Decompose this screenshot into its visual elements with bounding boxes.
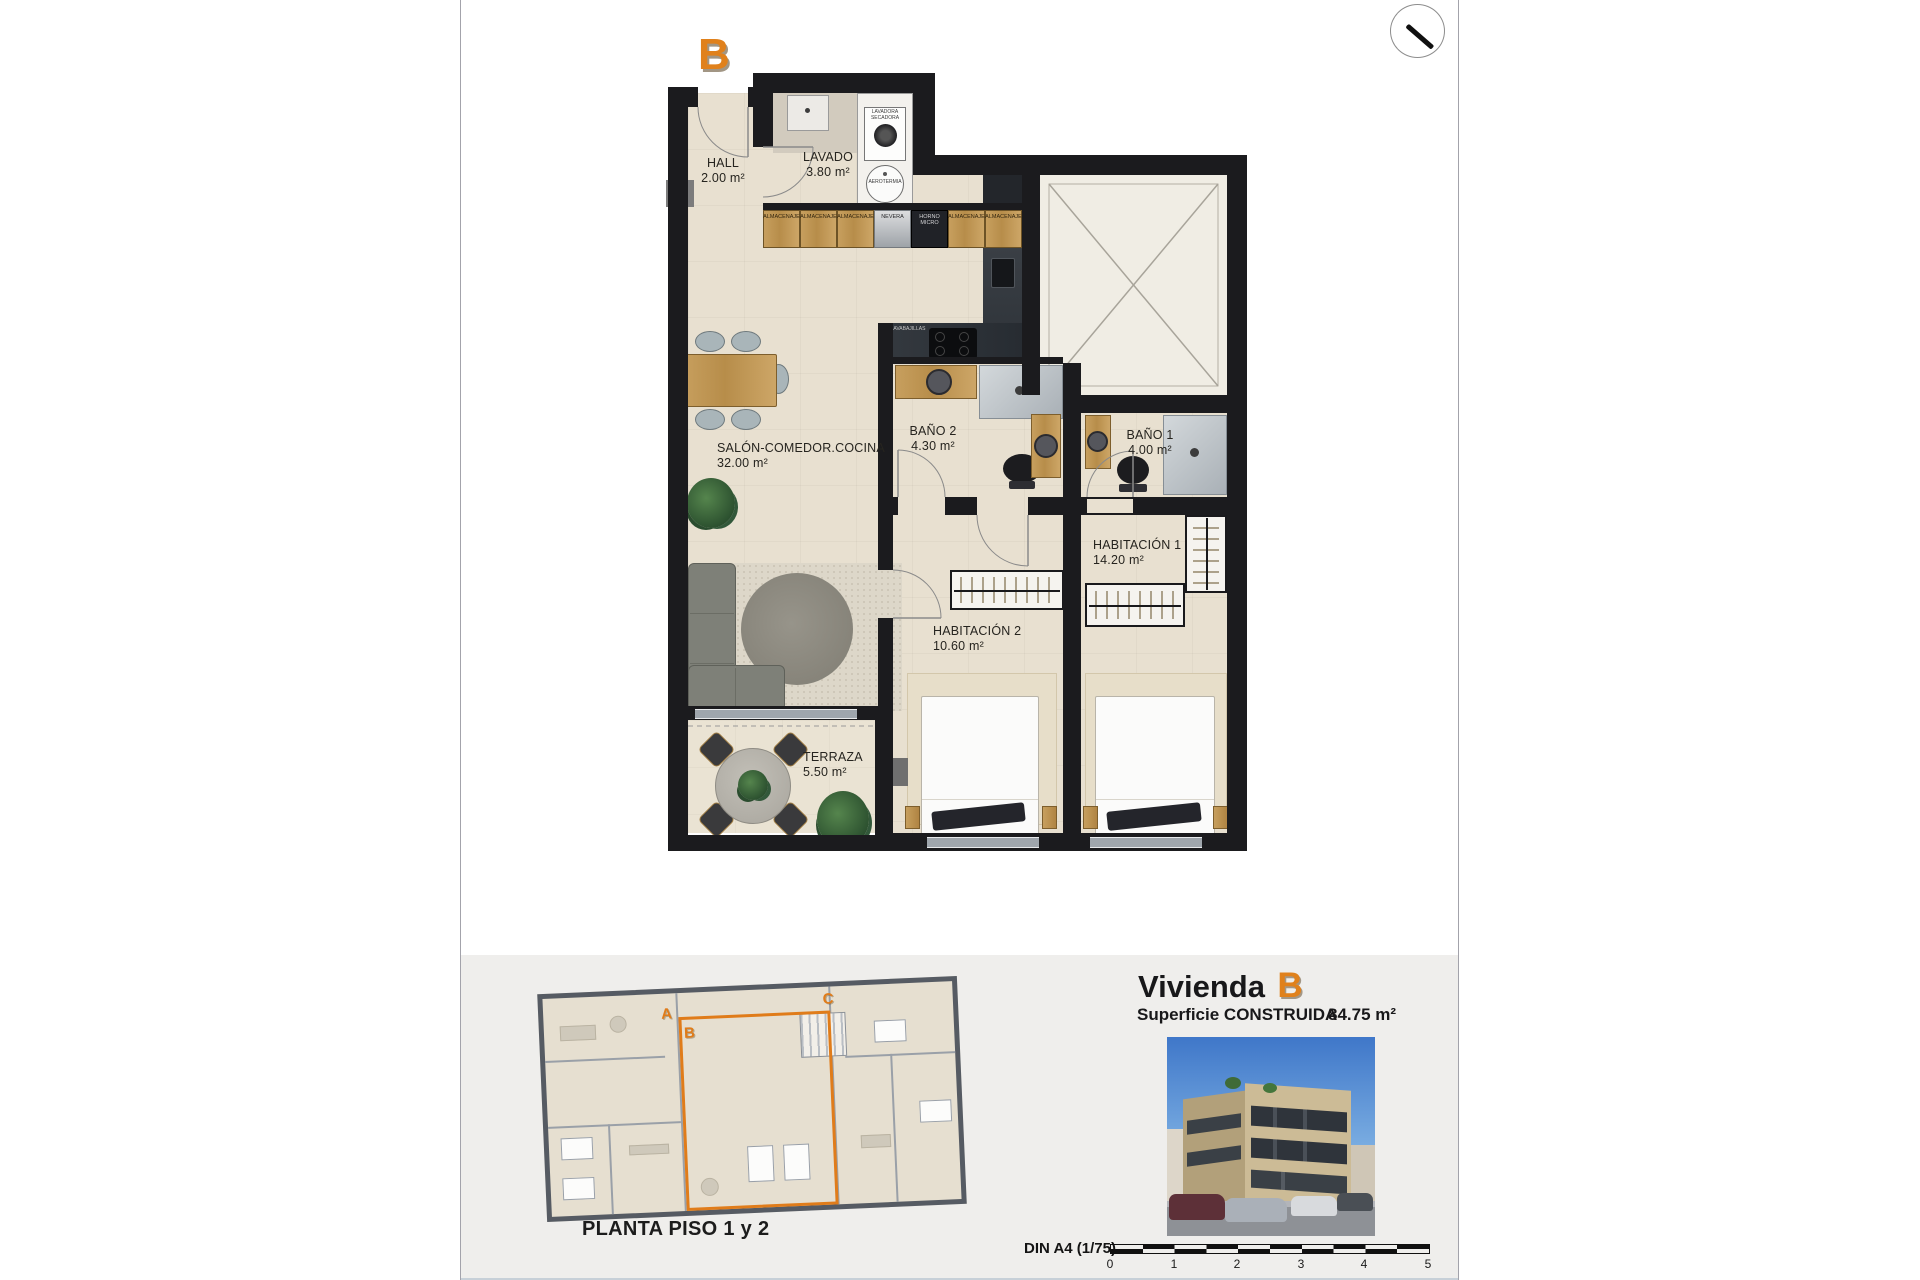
surface-label: Superficie CONSTRUIDA (1137, 1005, 1337, 1025)
bed (1095, 696, 1215, 835)
building-photo (1167, 1037, 1375, 1236)
kitchen-cabinet: ALMACENAJE (763, 210, 800, 248)
scale-bar-row (1111, 1249, 1429, 1253)
mini-sofa (861, 1134, 892, 1148)
room-divider (890, 1054, 898, 1202)
room-label-lavado: LAVADO 3.80 m² (790, 150, 866, 180)
wall (668, 835, 880, 851)
patio (1040, 175, 1227, 395)
unit-b-letter: B (684, 1024, 696, 1041)
bed (921, 696, 1039, 835)
patio-cross-icon (1040, 175, 1227, 395)
pillow-icon (1106, 802, 1202, 831)
apartment-floor-plan: LAVADORA SECADORA AEROTERMIA ALMACENAJE … (665, 58, 1255, 858)
unit-c-letter: C (822, 990, 834, 1007)
wall (753, 73, 935, 93)
cabinet-label: ALMACENAJE (800, 214, 837, 220)
nightstand (1083, 806, 1098, 829)
washer-drum-icon (874, 124, 897, 147)
scale-bar (1110, 1244, 1430, 1254)
wall (668, 87, 698, 107)
window-door (695, 709, 857, 719)
counter-sink-icon (991, 258, 1015, 288)
room-label-hab1: HABITACIÓN 1 14.20 m² (1093, 538, 1203, 568)
mini-sofa (560, 1025, 597, 1042)
wall (1028, 497, 1081, 515)
faucet-icon (805, 108, 810, 113)
room-area: 4.30 m² (897, 439, 969, 454)
wall (878, 618, 893, 720)
room-divider (545, 1056, 665, 1063)
washbasin-icon (1087, 431, 1108, 452)
photo-car (1337, 1193, 1373, 1211)
oven-label: HORNO MICRO (918, 214, 942, 226)
toilet-tank (1119, 484, 1147, 492)
bed-fold (1096, 799, 1214, 800)
washbasin-icon (1034, 434, 1058, 458)
room-name: HALL (683, 156, 763, 171)
washbasin-icon (926, 369, 952, 395)
heat-pump-dot (883, 172, 887, 176)
wall (763, 203, 1022, 210)
photo-roof-plant (1225, 1077, 1241, 1089)
room-area: 5.50 m² (803, 765, 883, 780)
wardrobe (950, 570, 1064, 610)
kitchen-cabinet: ALMACENAJE (800, 210, 837, 248)
room-name: SALÓN-COMEDOR.COCINA (717, 441, 897, 456)
scale-caption: DIN A4 (1/75) (1024, 1240, 1116, 1257)
wall (1063, 363, 1081, 497)
wardrobe-rod (1089, 605, 1181, 607)
sheet: B LAVADORA SECADORA AEROTERMIA ALMACENAJ… (0, 0, 1920, 1280)
scale-tick: 2 (1227, 1257, 1247, 1271)
room-name: TERRAZA (803, 750, 883, 765)
toilet-tank (1009, 481, 1035, 489)
cabinet-label: ALMACENAJE (837, 214, 874, 220)
toilet-icon (1117, 456, 1149, 484)
room-area: 3.80 m² (790, 165, 866, 180)
mini-plan-caption: PLANTA PISO 1 y 2 (582, 1218, 769, 1241)
cabinet-label: ALMACENAJE (948, 214, 985, 220)
room-divider (608, 1124, 614, 1214)
burner-icon (935, 332, 945, 342)
kitchen-cabinet: ALMACENAJE (985, 210, 1022, 248)
showerhead-icon (1190, 448, 1199, 457)
mini-table (609, 1015, 627, 1033)
sofa-seam (690, 663, 734, 664)
mini-bed (561, 1137, 594, 1160)
nightstand (905, 806, 920, 829)
heat-pump-label: AEROTERMIA (867, 180, 903, 186)
room-area: 10.60 m² (933, 639, 1043, 654)
room-name: BAÑO 1 (1110, 428, 1190, 443)
room-divider (845, 1051, 955, 1058)
washer-label: LAVADORA SECADORA (865, 110, 905, 121)
room-area: 32.00 m² (717, 456, 897, 471)
cabinet-label: ALMACENAJE (985, 214, 1022, 220)
wall (875, 718, 893, 851)
cabinet-label: ALMACENAJE (763, 214, 800, 220)
room-area: 2.00 m² (683, 171, 763, 186)
oven-micro: HORNO MICRO (911, 210, 948, 248)
room-name: HABITACIÓN 2 (933, 624, 1043, 639)
room-name: LAVADO (790, 150, 866, 165)
mini-bed (562, 1177, 595, 1200)
fridge-label: NEVERA (881, 214, 904, 220)
scale-tick: 0 (1100, 1257, 1120, 1271)
photo-car (1225, 1198, 1287, 1222)
sofa-seam (690, 613, 734, 614)
wardrobe-rod (1206, 518, 1208, 589)
chair (695, 409, 725, 430)
room-divider (548, 1121, 681, 1129)
pillow-icon (932, 802, 1026, 831)
wardrobe (1085, 583, 1185, 627)
photo-roof-plant (1263, 1083, 1277, 1093)
wall (1081, 395, 1247, 413)
dining-table (682, 354, 777, 407)
sofa-chaise (688, 665, 785, 711)
room-name: BAÑO 2 (897, 424, 969, 439)
window (927, 837, 1039, 848)
room-area: 4.00 m² (1110, 443, 1190, 458)
wall (945, 497, 977, 515)
scale-tick: 5 (1418, 1257, 1438, 1271)
wall (878, 515, 893, 570)
nightstand (1213, 806, 1228, 829)
mini-building-plan: A B C (537, 976, 967, 1222)
plant-icon (738, 770, 768, 800)
unit-a-letter: A (661, 1005, 673, 1022)
chair (731, 331, 761, 352)
wall (885, 357, 1063, 364)
room-label-terraza: TERRAZA 5.50 m² (803, 750, 883, 780)
room-label-bano1: BAÑO 1 4.00 m² (1110, 428, 1190, 458)
nightstand (1042, 806, 1057, 829)
wall (668, 87, 688, 847)
door-gap (1087, 499, 1133, 513)
scale-tick: 3 (1291, 1257, 1311, 1271)
unit-title-letter: B (1277, 966, 1302, 1005)
sofa-seam (735, 668, 736, 708)
window (1090, 837, 1202, 848)
mini-bed (919, 1099, 952, 1122)
surface-value: 84.75 m² (1328, 1005, 1396, 1025)
burner-icon (935, 346, 945, 356)
tall-unit (983, 175, 1022, 205)
burner-icon (959, 332, 969, 342)
photo-car (1291, 1196, 1337, 1216)
chair (731, 409, 761, 430)
floor-cutout (935, 58, 1255, 155)
laundry-sink (787, 95, 829, 131)
fridge: NEVERA (874, 210, 911, 248)
room-area: 14.20 m² (1093, 553, 1203, 568)
room-label-hab2: HABITACIÓN 2 10.60 m² (933, 624, 1043, 654)
wardrobe-rod (954, 590, 1060, 592)
unit-b-outline (678, 1011, 838, 1211)
unit-title: Vivienda B (1138, 966, 1303, 1006)
wall (913, 155, 1247, 175)
wall (753, 73, 773, 147)
room-label-bano2: BAÑO 2 4.30 m² (897, 424, 969, 454)
mini-bed (874, 1019, 907, 1042)
bed-fold (922, 799, 1038, 800)
plant-icon (687, 478, 735, 528)
room-name: HABITACIÓN 1 (1093, 538, 1203, 553)
chair (695, 331, 725, 352)
wall (1063, 515, 1081, 833)
burner-icon (959, 346, 969, 356)
kitchen-cabinet: ALMACENAJE (948, 210, 985, 248)
wall (878, 497, 898, 515)
scale-tick: 4 (1354, 1257, 1374, 1271)
kitchen-cabinet: ALMACENAJE (837, 210, 874, 248)
room-label-salon: SALÓN-COMEDOR.COCINA 32.00 m² (717, 441, 897, 471)
mini-wardrobe (629, 1144, 669, 1156)
photo-car (1169, 1194, 1225, 1220)
scale-tick: 1 (1164, 1257, 1184, 1271)
room-label-hall: HALL 2.00 m² (683, 156, 763, 186)
page-border-right (1458, 0, 1459, 1280)
unit-title-prefix: Vivienda (1138, 969, 1265, 1004)
